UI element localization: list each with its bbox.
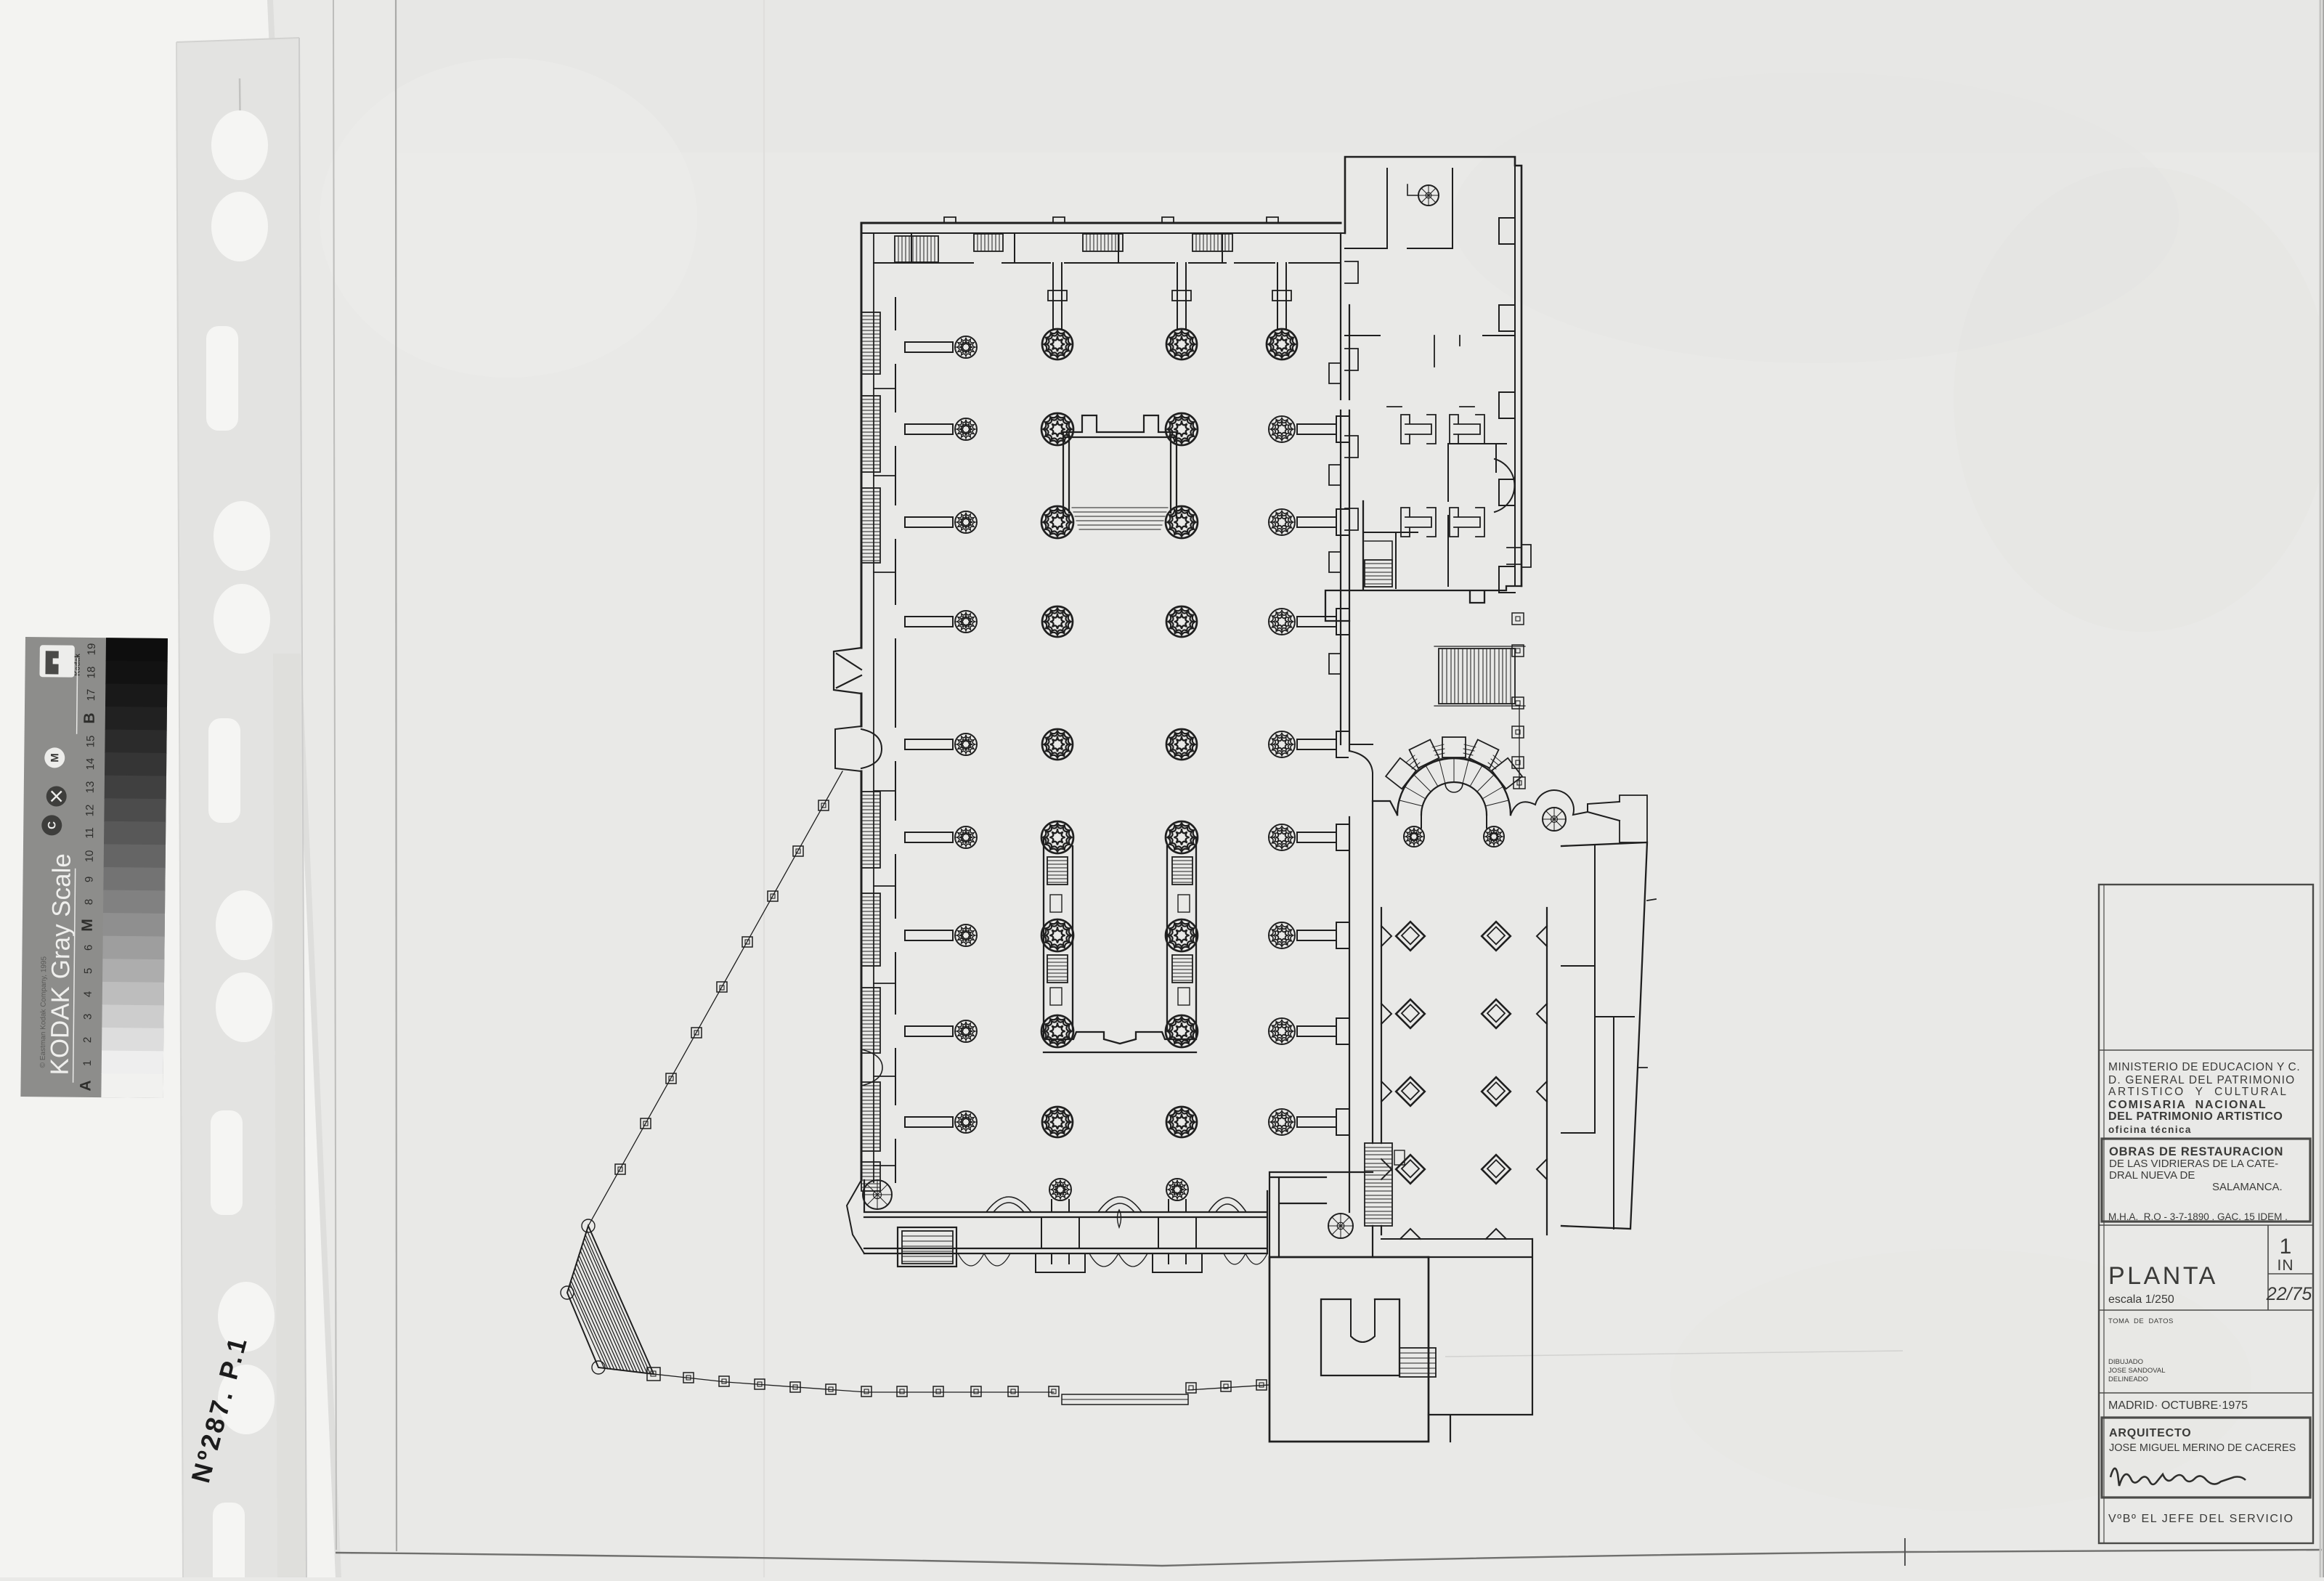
svg-text:22/75: 22/75 bbox=[2266, 1284, 2312, 1304]
svg-text:© Eastman Kodak Company, 1995: © Eastman Kodak Company, 1995 bbox=[39, 956, 49, 1068]
svg-text:14: 14 bbox=[84, 758, 97, 771]
svg-text:B: B bbox=[81, 712, 98, 723]
svg-text:PLANTA: PLANTA bbox=[2108, 1262, 2218, 1290]
svg-text:ARTISTICO Y CULTURAL: ARTISTICO Y CULTURAL bbox=[2108, 1086, 2288, 1098]
svg-text:DE LAS VIDRIERAS DE LA CATE-: DE LAS VIDRIERAS DE LA CATE- bbox=[2109, 1158, 2278, 1170]
svg-text:6: 6 bbox=[82, 945, 94, 951]
svg-text:2: 2 bbox=[81, 1037, 94, 1044]
svg-text:4: 4 bbox=[82, 991, 94, 998]
svg-text:DRAL NUEVA DE: DRAL NUEVA DE bbox=[2109, 1169, 2195, 1182]
svg-text:DEL PATRIMONIO ARTISTICO: DEL PATRIMONIO ARTISTICO bbox=[2108, 1110, 2283, 1123]
svg-text:1: 1 bbox=[2280, 1235, 2292, 1259]
svg-text:M.H.A. R.O - 3-7-1890 . GAC.: M.H.A. R.O - 3-7-1890 . GAC. 15 IDEM . bbox=[2108, 1211, 2288, 1222]
svg-text:11: 11 bbox=[84, 827, 96, 839]
svg-text:JOSE SANDOVAL: JOSE SANDOVAL bbox=[2108, 1367, 2166, 1375]
svg-text:17: 17 bbox=[85, 689, 97, 702]
svg-text:A: A bbox=[77, 1080, 94, 1091]
svg-text:3: 3 bbox=[81, 1014, 94, 1020]
svg-text:OBRAS DE RESTAURACION: OBRAS DE RESTAURACION bbox=[2109, 1145, 2283, 1158]
svg-text:SALAMANCA.: SALAMANCA. bbox=[2212, 1181, 2283, 1193]
svg-text:MINISTERIO DE EDUCACION Y C.: MINISTERIO DE EDUCACION Y C. bbox=[2108, 1061, 2300, 1073]
svg-text:9: 9 bbox=[83, 877, 95, 883]
svg-text:DELINEADO: DELINEADO bbox=[2108, 1375, 2148, 1383]
svg-text:JOSE MIGUEL MERINO DE CACERES: JOSE MIGUEL MERINO DE CACERES bbox=[2109, 1442, 2296, 1454]
svg-text:IN: IN bbox=[2278, 1257, 2294, 1274]
svg-text:5: 5 bbox=[82, 968, 94, 975]
svg-text:C: C bbox=[46, 821, 58, 829]
svg-text:1: 1 bbox=[81, 1060, 94, 1067]
svg-text:ARQUITECTO: ARQUITECTO bbox=[2109, 1427, 2191, 1439]
svg-text:VºBº EL JEFE DEL SERVICIO: VºBº EL JEFE DEL SERVICIO bbox=[2108, 1513, 2294, 1525]
svg-text:15: 15 bbox=[84, 736, 97, 748]
svg-text:8: 8 bbox=[83, 899, 95, 906]
svg-text:19: 19 bbox=[86, 643, 98, 656]
svg-text:M: M bbox=[79, 919, 96, 932]
svg-text:12: 12 bbox=[84, 805, 96, 817]
svg-text:13: 13 bbox=[84, 781, 97, 794]
svg-text:escala 1/250: escala 1/250 bbox=[2108, 1293, 2174, 1306]
svg-text:M: M bbox=[49, 753, 61, 763]
svg-text:D. GENERAL DEL PATRIMONIO: D. GENERAL DEL PATRIMONIO bbox=[2108, 1074, 2295, 1086]
svg-text:TOMA DE DATOS: TOMA DE DATOS bbox=[2108, 1317, 2174, 1325]
svg-text:oficina técnica: oficina técnica bbox=[2108, 1124, 2192, 1135]
svg-text:DIBUJADO: DIBUJADO bbox=[2108, 1358, 2143, 1366]
svg-text:MADRID· OCTUBRE·1975: MADRID· OCTUBRE·1975 bbox=[2108, 1399, 2248, 1412]
svg-text:10: 10 bbox=[84, 850, 96, 863]
svg-text:KODAK Gray Scale: KODAK Gray Scale bbox=[46, 853, 76, 1076]
svg-text:COMISARIA NACIONAL: COMISARIA NACIONAL bbox=[2108, 1099, 2267, 1111]
svg-text:18: 18 bbox=[85, 667, 97, 679]
